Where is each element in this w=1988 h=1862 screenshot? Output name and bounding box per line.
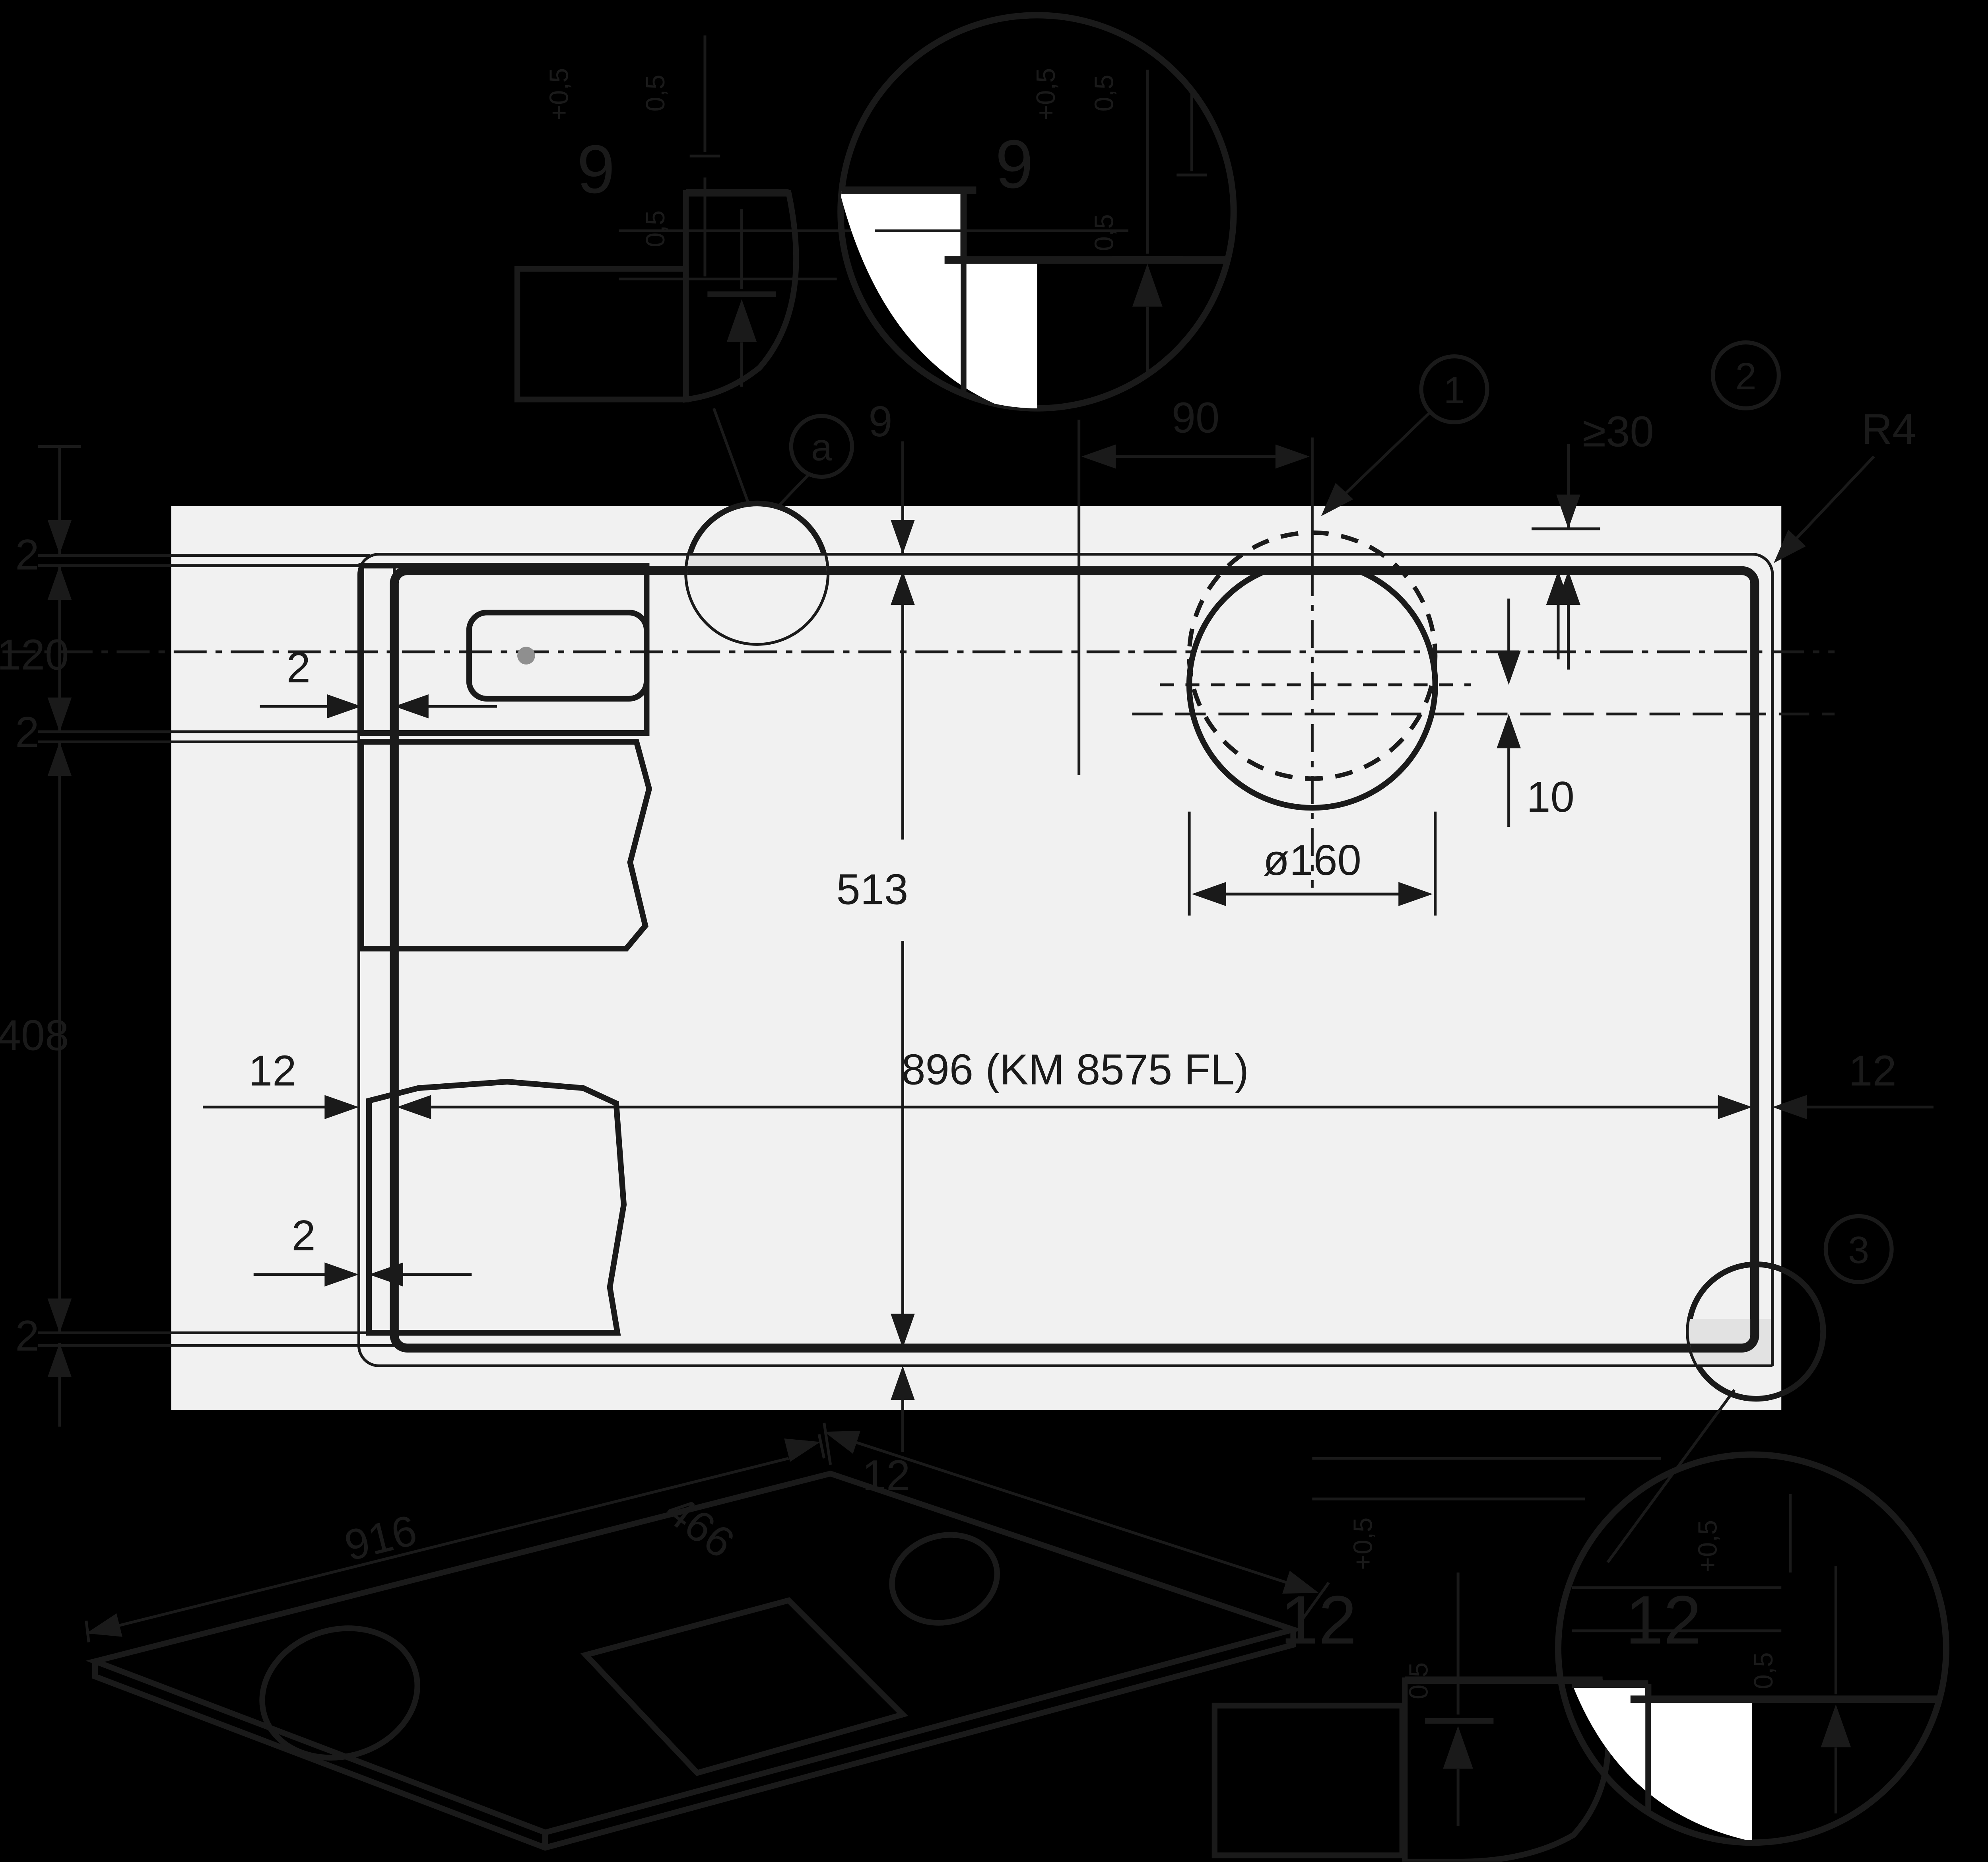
callout-1: 1 bbox=[1312, 356, 1487, 524]
detail-top-circle: 9 +0,5 0,5 0,5 bbox=[839, 15, 1234, 418]
tolerance-label: +0,5 bbox=[1693, 1520, 1723, 1572]
worktop-section-hatch bbox=[517, 269, 686, 399]
plan-view: 2 120 2 408 2 2 2 9 bbox=[0, 342, 1934, 1563]
tolerance-label: 0,5 bbox=[1089, 75, 1119, 112]
svg-text:12: 12 bbox=[248, 1047, 297, 1095]
tolerance-label: 0,5 bbox=[1749, 1652, 1778, 1689]
iso-width-label: 916 bbox=[340, 1506, 421, 1570]
detail-9-label: 9 bbox=[995, 126, 1033, 202]
dim-gap-mid: 2 bbox=[15, 708, 39, 756]
svg-text:1: 1 bbox=[1444, 369, 1465, 412]
detail-bottom-circle: 12 +0,5 0,5 bbox=[1558, 1455, 1946, 1843]
tolerance-label: +0,5 bbox=[1348, 1518, 1378, 1570]
svg-text:2: 2 bbox=[1735, 355, 1756, 398]
dim-513: 513 bbox=[836, 865, 908, 914]
dim-9: 9 bbox=[868, 397, 892, 445]
isometric-view: 916 466 bbox=[83, 1420, 1329, 1848]
tolerance-label: +0,5 bbox=[544, 68, 574, 121]
callout-3: 3 bbox=[1826, 1216, 1892, 1282]
dim-120: 120 bbox=[0, 631, 69, 679]
dim-gap-bottom: 2 bbox=[15, 1312, 39, 1360]
dim-408: 408 bbox=[0, 1011, 69, 1059]
svg-text:2: 2 bbox=[291, 1211, 315, 1259]
cooking-zone-large bbox=[247, 1610, 433, 1776]
svg-text:ø160: ø160 bbox=[1263, 836, 1361, 884]
callout-a: a bbox=[777, 416, 852, 507]
dim-12-right: 12 bbox=[1773, 1047, 1934, 1120]
svg-text:10: 10 bbox=[1526, 773, 1574, 821]
callout-2: 2 bbox=[1713, 342, 1779, 408]
svg-text:2: 2 bbox=[287, 643, 311, 692]
dim-gap-top: 2 bbox=[15, 531, 39, 579]
cooking-zone-small bbox=[881, 1523, 1008, 1635]
svg-text:3: 3 bbox=[1848, 1229, 1869, 1271]
detail-9-label: 9 bbox=[577, 131, 615, 208]
tolerance-label: +0,5 bbox=[1031, 68, 1061, 121]
detail-bottom-left: 12 +0,5 0,5 bbox=[1215, 1458, 1661, 1862]
svg-text:R4: R4 bbox=[1861, 405, 1916, 453]
recess-step-gray bbox=[1405, 1680, 1608, 1862]
installation-drawing: 2 120 2 408 2 2 2 9 bbox=[0, 0, 1988, 1862]
svg-text:90: 90 bbox=[1172, 393, 1220, 441]
control-dot bbox=[517, 647, 535, 665]
svg-text:a: a bbox=[811, 426, 833, 469]
tolerance-label: 0,5 bbox=[1089, 214, 1119, 251]
left-dimension-chain: 2 120 2 408 2 bbox=[0, 446, 72, 1427]
svg-text:12: 12 bbox=[1848, 1047, 1897, 1095]
dim-896-label: 896 (KM 8575 FL) bbox=[901, 1045, 1249, 1093]
dim-r4: R4 bbox=[1765, 405, 1916, 571]
tolerance-label: 0,5 bbox=[641, 210, 670, 247]
svg-text:≥30: ≥30 bbox=[1582, 407, 1654, 455]
tolerance-label: 0,5 bbox=[641, 75, 670, 112]
worktop-section-hatch bbox=[1215, 1706, 1402, 1855]
detail-12-label: 12 bbox=[1625, 1582, 1702, 1658]
